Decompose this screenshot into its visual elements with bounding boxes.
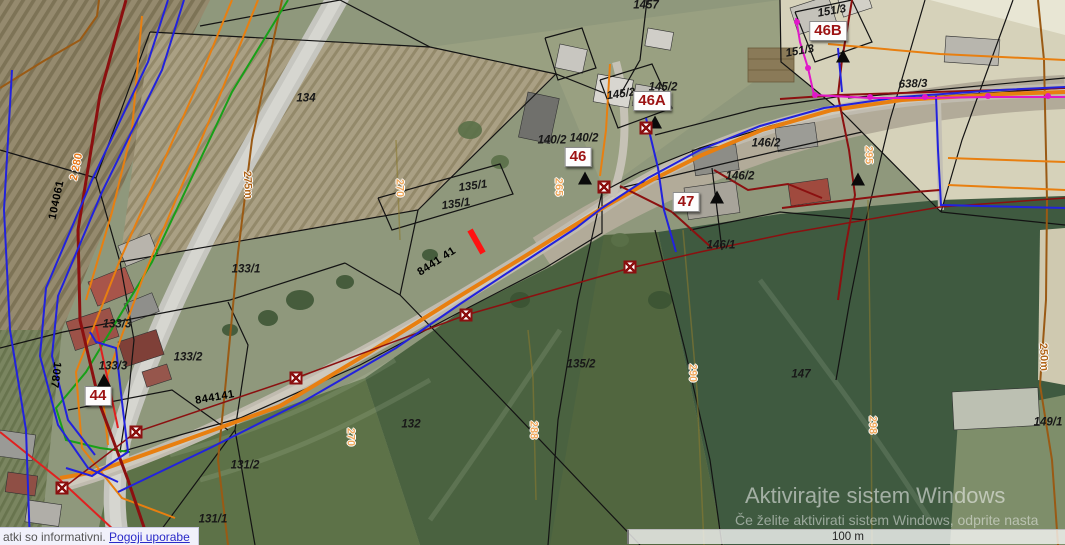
magenta-line-node [867, 94, 873, 100]
house-number-marker[interactable]: 46 [565, 147, 592, 167]
map-linework [0, 0, 1065, 545]
magenta-line-node [794, 19, 800, 25]
utility-node-marker [56, 482, 69, 495]
building-triangle-marker [97, 374, 111, 387]
disclaimer-text: atki so informativni. [3, 530, 106, 544]
magenta-line-node [805, 65, 811, 71]
building-triangle-marker [851, 173, 865, 186]
windows-activation-watermark-subtitle: Če želite aktivirati sistem Windows, odp… [735, 512, 1038, 528]
magenta-line-node [1045, 93, 1051, 99]
magenta-line-node [922, 94, 928, 100]
house-number-marker[interactable]: 47 [673, 192, 700, 212]
map-scale-bar: 100 m [627, 529, 1065, 544]
house-number-marker[interactable]: 44 [85, 386, 112, 406]
disclaimer-bar: atki so informativni. Pogoji uporabe [0, 527, 199, 545]
building-triangle-marker [710, 191, 724, 204]
building-triangle-marker [836, 50, 850, 63]
terms-of-use-link[interactable]: Pogoji uporabe [109, 530, 190, 544]
house-number-marker[interactable]: 46A [633, 91, 671, 111]
windows-activation-watermark-title: Aktivirajte sistem Windows [745, 483, 1005, 509]
magenta-line-node [812, 92, 818, 98]
utility-node-marker [598, 181, 611, 194]
utility-node-marker [624, 261, 637, 274]
utility-node-marker [460, 309, 473, 322]
utility-node-marker [290, 372, 303, 385]
utility-node-marker [640, 122, 653, 135]
scale-bar-label: 100 m [832, 531, 864, 543]
magenta-line-node [985, 93, 991, 99]
utility-node-marker [130, 426, 143, 439]
building-triangle-marker [578, 172, 592, 185]
house-number-marker[interactable]: 46B [809, 21, 847, 41]
map-viewport[interactable]: 1457134135/1135/1133/1133/3133/3133/2131… [0, 0, 1065, 545]
